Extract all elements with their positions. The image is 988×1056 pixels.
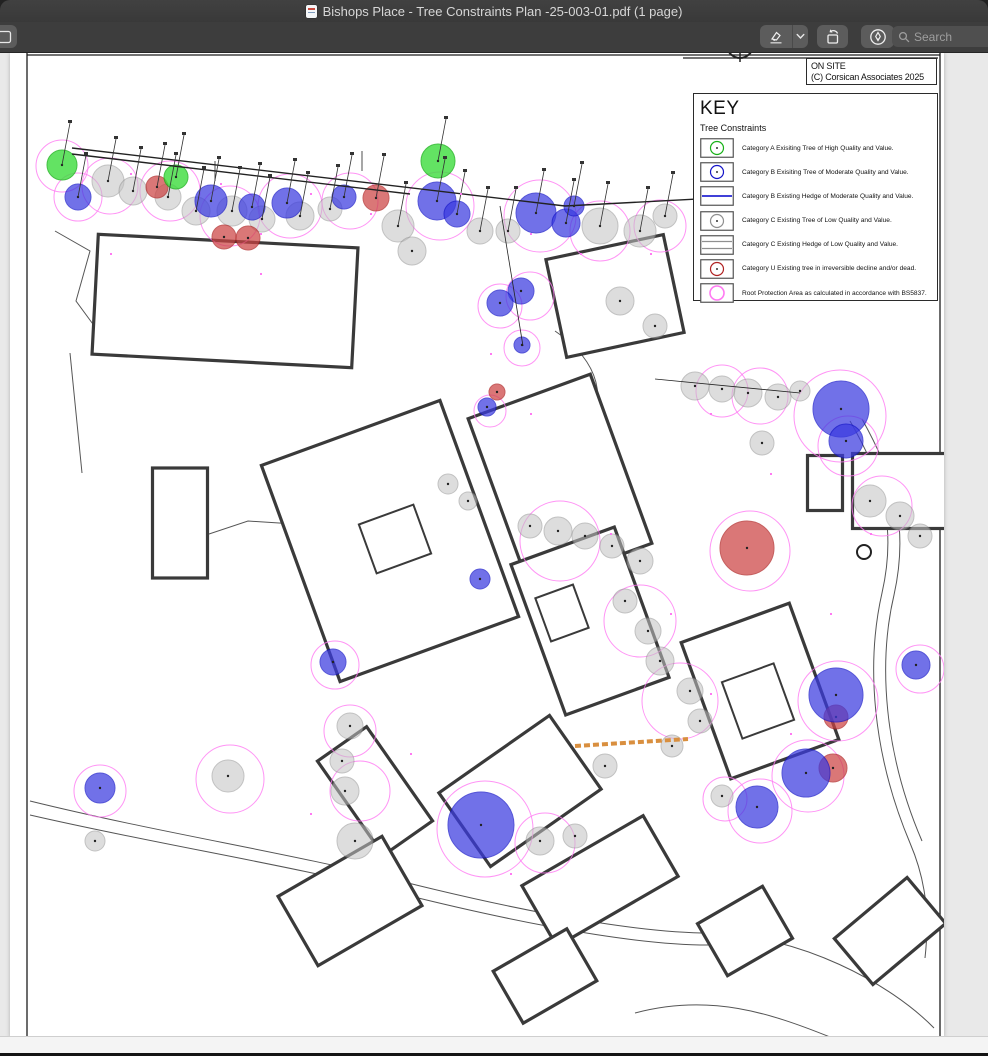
document-area: ON SITE (C) Corsican Associates 2025 KEY… bbox=[0, 53, 988, 1036]
chevron-down-icon bbox=[796, 33, 805, 40]
legend-rows: Category A Exisiting Tree of High Qualit… bbox=[700, 138, 931, 303]
markup-pen-icon bbox=[869, 28, 887, 46]
legend-row: Category B Existing Hedge of Moderate Qu… bbox=[700, 186, 931, 206]
legend-label: Category B Exisiting Tree of Moderate Qu… bbox=[742, 169, 909, 176]
legend-swatch-hedgeC-icon bbox=[700, 235, 734, 255]
window-titlebar: Bishops Place - Tree Constraints Plan -2… bbox=[0, 0, 988, 22]
legend-row: Root Protection Area as calculated in ac… bbox=[700, 283, 931, 303]
preview-window: Bishops Place - Tree Constraints Plan -2… bbox=[0, 0, 988, 1056]
search-placeholder: Search bbox=[914, 30, 952, 44]
toolbar: Search bbox=[0, 22, 988, 53]
legend-swatch-tree-icon bbox=[700, 162, 734, 182]
highlight-menu-button[interactable] bbox=[793, 25, 808, 48]
legend-label: Category A Exisiting Tree of High Qualit… bbox=[742, 145, 894, 152]
legend-swatch-tree-icon bbox=[700, 138, 734, 158]
legend-label: Category C Existing Hedge of Low Quality… bbox=[742, 241, 898, 248]
legend-row: Category B Exisiting Tree of Moderate Qu… bbox=[700, 162, 931, 182]
legend-label: Category B Existing Hedge of Moderate Qu… bbox=[742, 193, 913, 200]
rotate-button[interactable] bbox=[817, 25, 848, 48]
window-title: Bishops Place - Tree Constraints Plan -2… bbox=[323, 4, 683, 19]
key-legend: KEY Tree Constraints Category A Exisitin… bbox=[693, 93, 938, 301]
onsite-line2: (C) Corsican Associates 2025 bbox=[811, 72, 936, 83]
search-input[interactable]: Search bbox=[892, 26, 988, 47]
sidebar-icon bbox=[0, 30, 12, 44]
window-bottom-bar bbox=[0, 1036, 988, 1053]
sidebar-toggle-button[interactable] bbox=[0, 25, 17, 48]
pdf-page[interactable]: ON SITE (C) Corsican Associates 2025 KEY… bbox=[10, 53, 944, 1036]
key-subtitle: Tree Constraints bbox=[700, 123, 931, 133]
markup-toolbar-button[interactable] bbox=[861, 25, 894, 48]
legend-swatch-tree-icon bbox=[700, 259, 734, 279]
pdf-document-icon bbox=[306, 5, 317, 18]
highlight-split-button[interactable] bbox=[760, 25, 808, 48]
highlight-button[interactable] bbox=[760, 25, 792, 48]
buildings-layer bbox=[92, 234, 944, 1023]
legend-row: Category U Existing tree in irreversible… bbox=[700, 259, 931, 279]
legend-row: Category C Existing Tree of Low Quality … bbox=[700, 211, 931, 231]
titleblock-onsite: ON SITE (C) Corsican Associates 2025 bbox=[806, 58, 937, 85]
legend-label: Root Protection Area as calculated in ac… bbox=[742, 290, 927, 297]
search-icon bbox=[898, 31, 910, 43]
legend-swatch-rpa-icon bbox=[700, 283, 734, 303]
onsite-line1: ON SITE bbox=[811, 61, 936, 72]
key-title: KEY bbox=[700, 98, 931, 120]
legend-swatch-tree-icon bbox=[700, 211, 734, 231]
highlighter-icon bbox=[768, 29, 784, 45]
legend-label: Category C Existing Tree of Low Quality … bbox=[742, 217, 892, 224]
legend-swatch-hedgeB-icon bbox=[700, 186, 734, 206]
legend-row: Category C Existing Hedge of Low Quality… bbox=[700, 235, 931, 255]
legend-row: Category A Exisiting Tree of High Qualit… bbox=[700, 138, 931, 158]
rotate-left-icon bbox=[824, 28, 841, 45]
legend-label: Category U Existing tree in irreversible… bbox=[742, 265, 916, 272]
